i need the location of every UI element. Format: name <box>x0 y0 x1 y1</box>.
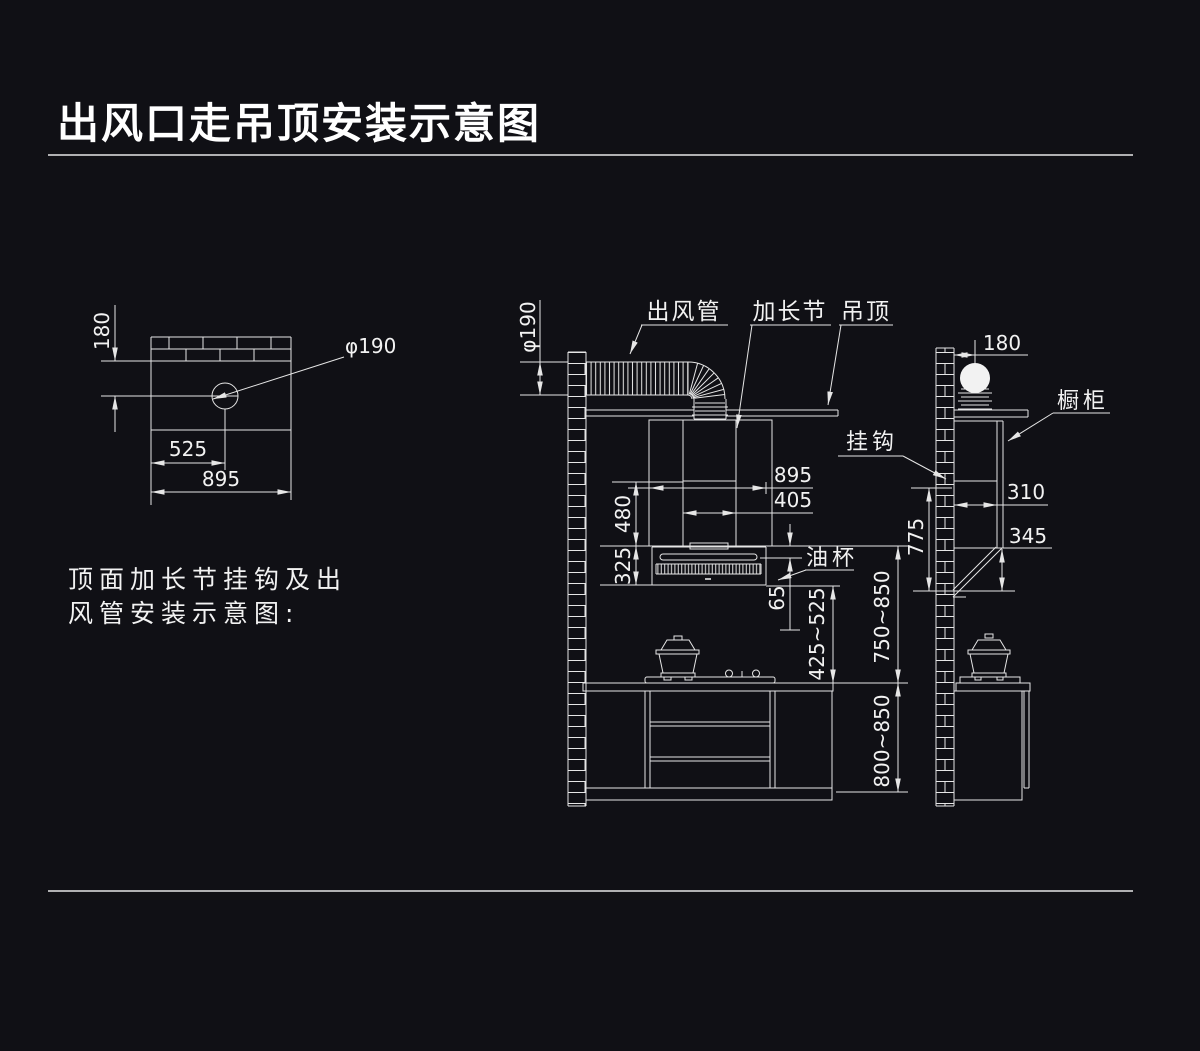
dim-top-gap-text: 65 <box>765 585 789 610</box>
hood-body <box>652 547 766 585</box>
dim-counter-height-text: 800~850 <box>870 694 894 787</box>
dim-extension-height-text: 480 <box>611 495 635 533</box>
label-extension-section: 加长节 <box>737 299 831 428</box>
dim-outlet-width-text: 405 <box>774 488 812 512</box>
label-suspended-ceiling-text: 吊顶 <box>841 299 891 325</box>
left-view-hole-layout: 180 φ190 525 895 <box>90 305 396 505</box>
dim-duct-diameter: φ190 <box>516 300 568 395</box>
dim-cabinet-depth: 310 <box>954 480 1048 505</box>
dim-extension-height: 480 <box>600 482 683 546</box>
label-air-duct: 出风管 <box>630 299 728 354</box>
dim-hood-width-text: 895 <box>774 463 812 487</box>
installation-diagram-page: 出风口走吊顶安装示意图 顶面加长节挂钩及出 风管安装示意图: 180 φ190 … <box>0 0 1200 1051</box>
dim-cabinet-depth-text: 310 <box>1007 480 1045 504</box>
title-block: 出风口走吊顶安装示意图 <box>48 99 1133 891</box>
dim-hood-top-to-counter-text: 750~850 <box>870 570 894 663</box>
label-oil-cup-text: 油杯 <box>806 546 858 571</box>
wall-cabinet <box>953 421 1003 597</box>
cooking-pot <box>656 636 699 680</box>
dim-wall-to-duct-text: 180 <box>983 331 1021 355</box>
dim-hole-offset: 525 <box>151 437 225 463</box>
base-cabinet <box>583 683 833 800</box>
wall-brick-column <box>568 352 586 806</box>
dim-hole-offset-text: 525 <box>169 437 207 461</box>
duct-section <box>954 363 1028 417</box>
label-extension-section-text: 加长节 <box>753 299 828 325</box>
dim-lower-section: 345 <box>1002 524 1052 591</box>
extension-cover <box>649 420 772 549</box>
dim-beam-to-hole-text: 180 <box>90 312 114 350</box>
caption-line-2: 风管安装示意图: <box>68 599 299 628</box>
dim-hood-bottom-to-counter-text: 425~525 <box>805 587 829 680</box>
side-cooking-pot <box>968 634 1010 680</box>
dim-lower-section-text: 345 <box>1009 524 1047 548</box>
label-air-duct-text: 出风管 <box>647 299 722 325</box>
dim-hood-body-height: 325 <box>600 546 652 585</box>
label-hook-text: 挂钩 <box>846 430 898 455</box>
dim-beam-to-hole: 180 <box>90 305 115 432</box>
duct-ball-section <box>960 363 990 393</box>
dim-hook-height-text: 775 <box>904 518 928 556</box>
side-wall-brick-column <box>936 348 954 806</box>
label-suspended-ceiling: 吊顶 <box>828 299 893 405</box>
hole-diameter-callout: φ190 <box>213 334 396 399</box>
side-counter <box>954 677 1030 800</box>
hole-diameter-text: φ190 <box>345 334 396 358</box>
diagram-canvas: 出风口走吊顶安装示意图 顶面加长节挂钩及出 风管安装示意图: 180 φ190 … <box>0 0 1200 1051</box>
dim-wall-to-duct: 180 <box>954 331 1028 364</box>
label-cabinet-text: 橱柜 <box>1057 389 1109 414</box>
main-view-front-elevation: φ190 出风管 <box>516 299 908 806</box>
label-hook: 挂钩 <box>838 430 946 479</box>
caption-line-1: 顶面加长节挂钩及出 <box>68 565 347 594</box>
caption-block: 顶面加长节挂钩及出 风管安装示意图: <box>68 565 347 628</box>
label-cabinet: 橱柜 <box>1008 389 1110 441</box>
dim-overall-width-text: 895 <box>202 467 240 491</box>
dim-hook-height: 775 <box>904 488 1015 591</box>
dim-overall-width: 895 <box>151 467 291 492</box>
dim-counter-height: 800~850 <box>836 683 908 792</box>
page-title: 出风口走吊顶安装示意图 <box>57 99 541 148</box>
dim-duct-diameter-text: φ190 <box>516 301 540 352</box>
dim-outlet-width: 405 <box>683 488 813 513</box>
dim-hood-body-height-text: 325 <box>611 547 635 585</box>
